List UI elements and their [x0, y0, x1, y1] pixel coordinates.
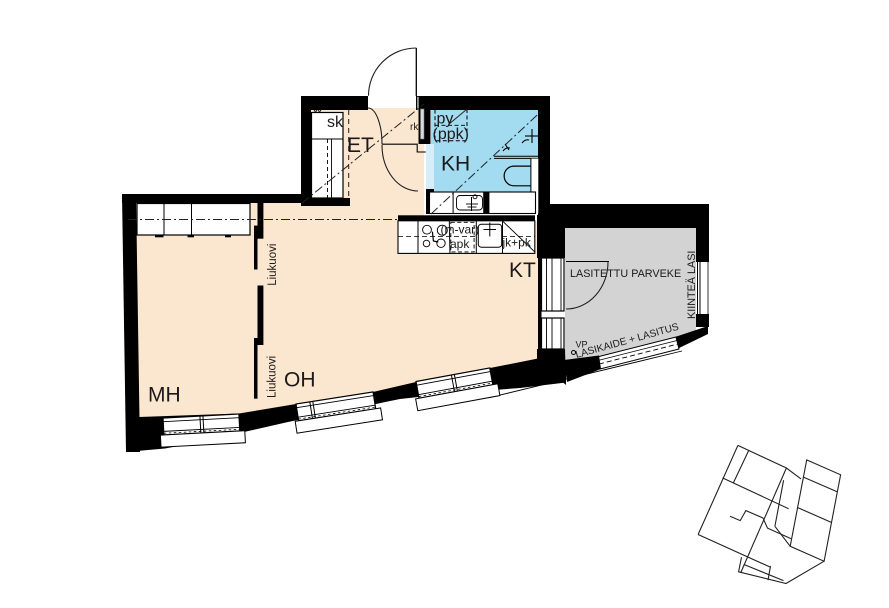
svg-text:KIINTEÄ LASI: KIINTEÄ LASI — [686, 251, 698, 319]
svg-text:Liukuovi: Liukuovi — [267, 356, 279, 398]
svg-text:LASITETTU PARVEKE: LASITETTU PARVEKE — [570, 268, 681, 280]
svg-text:KT: KT — [509, 259, 536, 282]
svg-text:sk: sk — [327, 114, 344, 131]
svg-text:jk+pk: jk+pk — [502, 236, 532, 250]
svg-text:KH: KH — [441, 153, 470, 176]
svg-text:VP: VP — [576, 340, 588, 350]
svg-text:ET: ET — [347, 134, 374, 157]
svg-text:(m-var): (m-var) — [441, 223, 480, 237]
svg-text:Liukuovi: Liukuovi — [267, 244, 279, 286]
svg-text:MH: MH — [148, 384, 181, 407]
svg-text:py: py — [437, 111, 454, 128]
svg-text:(ppk): (ppk) — [433, 126, 469, 143]
svg-text:OH: OH — [284, 369, 316, 392]
svg-text:rk: rk — [410, 122, 419, 133]
svg-text:apk: apk — [450, 237, 470, 251]
